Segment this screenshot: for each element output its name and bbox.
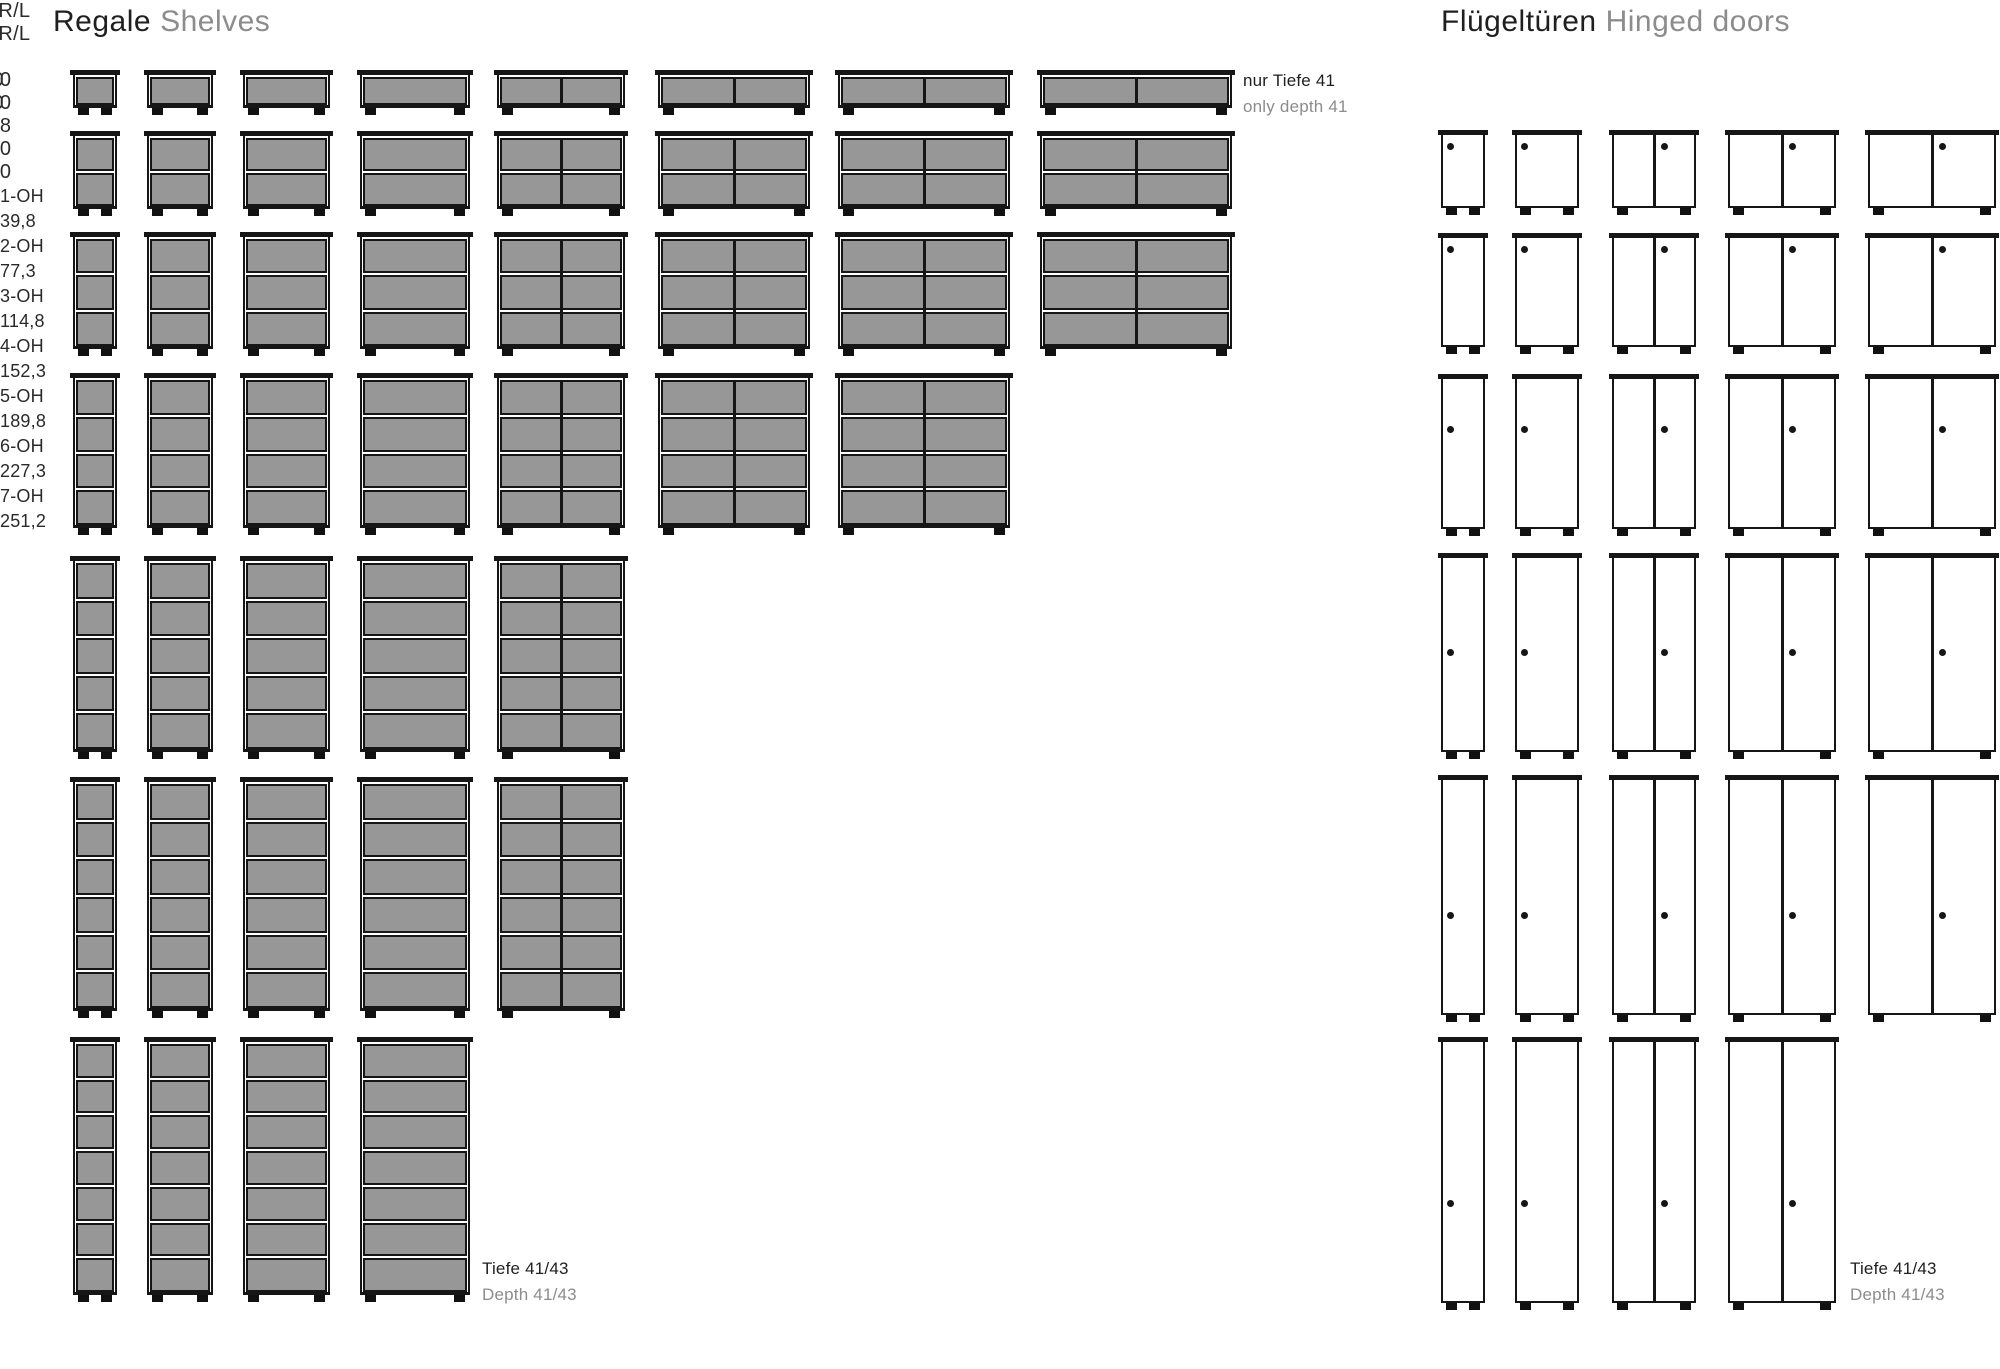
shelf-compartment	[363, 676, 467, 712]
unit-foot-left	[1617, 752, 1628, 759]
shelf-compartment	[363, 1258, 467, 1292]
unit-foot-left	[663, 349, 674, 356]
shelf-body	[243, 782, 330, 1011]
unit-foot-left	[248, 349, 259, 356]
shelf-compartment	[363, 275, 467, 309]
unit-foot-right	[1216, 108, 1227, 115]
unit-foot-right	[609, 349, 620, 356]
shelf-compartment	[363, 897, 467, 933]
shelf-body	[360, 75, 470, 108]
shelf-body	[360, 561, 470, 752]
shelf-unit-3-OH-w138	[658, 232, 810, 357]
row-label-oh: 6-OH	[0, 434, 46, 459]
shelf-compartment	[246, 972, 327, 1008]
shelf-body	[73, 237, 117, 349]
shelves-depth-note-en: Depth 41/43	[482, 1282, 577, 1308]
door-body	[1515, 238, 1579, 347]
doors-section: 40 R/L60 R/L80100120	[0, 0, 61, 115]
shelf-body	[147, 136, 213, 209]
shelf-column-header-138: 138	[0, 115, 23, 138]
unit-foot-right	[609, 752, 620, 759]
unit-foot-left	[152, 528, 163, 535]
unit-foot-right	[314, 349, 325, 356]
unit-foot-left	[1446, 347, 1457, 354]
shelf-compartment	[363, 1151, 467, 1185]
shelf-center-divider	[560, 380, 563, 525]
shelf-unit-1-OH-w138	[658, 70, 810, 116]
door-body	[1441, 780, 1485, 1015]
door-unit-3oh-w60	[1515, 233, 1579, 355]
unit-foot-left	[1617, 1015, 1628, 1022]
door-unit-3oh-w120	[1868, 233, 1996, 355]
shelf-center-divider	[923, 380, 926, 525]
shelf-compartment	[150, 275, 210, 309]
shelf-compartment	[363, 77, 467, 105]
shelf-unit-4-OH-w80	[243, 373, 330, 536]
unit-foot-right	[609, 528, 620, 535]
shelf-compartment	[76, 676, 114, 712]
door-handle-dot	[1661, 1200, 1668, 1207]
shelf-body	[243, 378, 330, 528]
shelf-compartment	[76, 454, 114, 489]
door-column-header-100: 100	[0, 69, 30, 92]
shelf-compartment	[150, 935, 210, 971]
unit-foot-right	[197, 528, 208, 535]
door-unit-2oh-w40	[1441, 130, 1485, 216]
shelf-unit-5-OH-w40	[73, 556, 117, 760]
unit-foot-right	[1980, 347, 1991, 354]
shelf-compartment	[76, 490, 114, 525]
shelf-row-label-1-OH: 1-OH39,8	[0, 184, 46, 234]
shelf-unit-6-OH-w120	[497, 777, 625, 1019]
shelf-compartment	[246, 935, 327, 971]
shelf-row-label-4-OH: 4-OH152,3	[0, 334, 46, 384]
unit-foot-right	[1820, 529, 1831, 536]
shelf-unit-2-OH-w40	[73, 131, 117, 217]
door-column-header-80: 80	[0, 46, 30, 69]
shelf-unit-3-OH-w80	[243, 232, 330, 357]
unit-foot-left	[843, 528, 854, 535]
shelf-column-header-160: 160	[0, 138, 23, 161]
shelf-row-label-6-OH: 6-OH227,3	[0, 434, 46, 484]
unit-foot-right	[101, 209, 112, 216]
unit-foot-right	[1563, 752, 1574, 759]
unit-foot-right	[1469, 1303, 1480, 1310]
door-unit-3oh-w40	[1441, 233, 1485, 355]
shelves-depth-note: Tiefe 41/43 Depth 41/43	[482, 1256, 577, 1308]
door-handle-dot	[1521, 426, 1528, 433]
unit-foot-left	[1520, 529, 1531, 536]
shelf-compartment	[246, 713, 327, 749]
shelf-compartment	[246, 173, 327, 206]
shelf-unit-1-OH-w100	[360, 70, 470, 116]
shelf-body	[73, 75, 117, 108]
door-unit-3oh-w100	[1728, 233, 1836, 355]
unit-foot-right	[454, 1295, 465, 1302]
unit-foot-left	[1617, 347, 1628, 354]
unit-foot-left	[1733, 347, 1744, 354]
unit-foot-left	[152, 752, 163, 759]
door-handle-dot	[1939, 426, 1946, 433]
unit-foot-right	[197, 209, 208, 216]
doors-title-de: Flügeltüren	[1441, 5, 1597, 38]
shelf-compartment	[150, 897, 210, 933]
shelf-compartment	[363, 454, 467, 489]
shelf-compartment	[246, 601, 327, 637]
shelf-compartment	[363, 380, 467, 415]
unit-foot-right	[197, 1295, 208, 1302]
shelf-compartment	[363, 1187, 467, 1221]
shelves-title-de: Regale	[53, 5, 151, 38]
doors-depth-note-en: Depth 41/43	[1850, 1282, 1945, 1308]
shelf-compartment	[246, 1187, 327, 1221]
door-unit-2oh-w120	[1868, 130, 1996, 216]
unit-foot-left	[1520, 208, 1531, 215]
unit-foot-left	[843, 108, 854, 115]
unit-foot-left	[843, 209, 854, 216]
unit-foot-right	[101, 1011, 112, 1018]
door-center-gap	[1931, 379, 1934, 529]
unit-foot-left	[502, 1011, 513, 1018]
unit-foot-right	[794, 349, 805, 356]
shelf-compartment	[76, 822, 114, 858]
door-column-header-60: 60 R/L	[0, 23, 30, 46]
shelves-title: RegaleShelves	[53, 5, 270, 39]
shelf-body	[243, 75, 330, 108]
unit-foot-left	[365, 108, 376, 115]
shelf-compartment	[150, 713, 210, 749]
shelf-unit-1-OH-w40	[73, 70, 117, 116]
shelf-compartment	[246, 454, 327, 489]
shelf-compartment	[76, 1080, 114, 1114]
shelf-compartment	[150, 417, 210, 452]
unit-foot-right	[454, 349, 465, 356]
shelf-unit-4-OH-w100	[360, 373, 470, 536]
unit-foot-right	[1980, 752, 1991, 759]
unit-foot-left	[152, 1011, 163, 1018]
row-label-height: 227,3	[0, 459, 46, 484]
door-center-gap	[1781, 238, 1784, 347]
unit-foot-right	[1680, 1015, 1691, 1022]
shelf-compartment	[76, 1258, 114, 1292]
shelf-compartment	[76, 380, 114, 415]
unit-foot-right	[314, 1295, 325, 1302]
shelf-compartment	[150, 77, 210, 105]
door-handle-dot	[1661, 649, 1668, 656]
shelf-compartment	[150, 1258, 210, 1292]
shelf-unit-5-OH-w80	[243, 556, 330, 760]
unit-foot-left	[248, 1295, 259, 1302]
row-label-height: 152,3	[0, 359, 46, 384]
shelf-body	[147, 75, 213, 108]
unit-foot-left	[1733, 1015, 1744, 1022]
unit-foot-right	[197, 349, 208, 356]
door-center-gap	[1653, 238, 1656, 347]
shelf-body	[73, 136, 117, 209]
door-unit-5oh-w40	[1441, 553, 1485, 760]
door-center-gap	[1781, 558, 1784, 752]
door-handle-dot	[1447, 246, 1454, 253]
door-center-gap	[1931, 135, 1934, 208]
unit-foot-left	[365, 349, 376, 356]
row-label-oh: 7-OH	[0, 484, 46, 509]
unit-foot-left	[1733, 208, 1744, 215]
shelf-unit-7-OH-w100	[360, 1037, 470, 1303]
door-unit-6oh-w100	[1728, 775, 1836, 1023]
row-label-oh: 4-OH	[0, 334, 46, 359]
door-unit-5oh-w80	[1612, 553, 1696, 760]
shelf-compartment	[76, 601, 114, 637]
unit-foot-right	[101, 349, 112, 356]
shelf-body	[147, 237, 213, 349]
unit-foot-right	[314, 1011, 325, 1018]
door-unit-3oh-w80	[1612, 233, 1696, 355]
door-handle-dot	[1939, 912, 1946, 919]
shelf-compartment	[150, 563, 210, 599]
unit-foot-right	[1469, 1015, 1480, 1022]
unit-foot-right	[1820, 1303, 1831, 1310]
shelf-compartment	[150, 1080, 210, 1114]
shelf-compartment	[246, 417, 327, 452]
unit-foot-right	[1820, 208, 1831, 215]
shelf-compartment	[76, 1187, 114, 1221]
shelf-compartment	[246, 1044, 327, 1078]
shelf-compartment	[246, 859, 327, 895]
shelf-compartment	[150, 1044, 210, 1078]
door-center-gap	[1653, 558, 1656, 752]
unit-foot-right	[101, 1295, 112, 1302]
shelf-compartment	[246, 490, 327, 525]
shelf-unit-6-OH-w60	[147, 777, 213, 1019]
shelf-unit-3-OH-w160	[838, 232, 1010, 357]
only-depth-note-de: nur Tiefe 41	[1243, 68, 1348, 94]
unit-foot-left	[1733, 529, 1744, 536]
shelf-unit-2-OH-w120	[497, 131, 625, 217]
unit-foot-left	[78, 349, 89, 356]
shelf-compartment	[150, 454, 210, 489]
door-handle-dot	[1661, 246, 1668, 253]
unit-foot-right	[1469, 529, 1480, 536]
shelf-compartment	[76, 972, 114, 1008]
door-center-gap	[1653, 379, 1656, 529]
door-unit-4oh-w60	[1515, 374, 1579, 537]
shelf-compartment	[363, 1115, 467, 1149]
door-unit-2oh-w60	[1515, 130, 1579, 216]
door-handle-dot	[1447, 1200, 1454, 1207]
door-unit-4oh-w80	[1612, 374, 1696, 537]
unit-foot-right	[1469, 208, 1480, 215]
shelf-body	[147, 561, 213, 752]
door-center-gap	[1781, 135, 1784, 208]
unit-foot-left	[1617, 1303, 1628, 1310]
row-label-height: 39,8	[0, 209, 46, 234]
unit-foot-right	[101, 108, 112, 115]
shelf-unit-5-OH-w100	[360, 556, 470, 760]
unit-foot-right	[1216, 349, 1227, 356]
unit-foot-right	[314, 108, 325, 115]
shelf-body	[360, 1042, 470, 1295]
unit-foot-left	[248, 528, 259, 535]
shelf-compartment	[76, 859, 114, 895]
shelf-compartment	[76, 563, 114, 599]
shelf-compartment	[76, 935, 114, 971]
door-handle-dot	[1939, 649, 1946, 656]
shelf-center-divider	[1135, 239, 1138, 346]
shelf-unit-4-OH-w120	[497, 373, 625, 536]
door-handle-dot	[1789, 426, 1796, 433]
shelf-compartment	[363, 859, 467, 895]
shelf-compartment	[150, 173, 210, 206]
unit-foot-right	[1469, 347, 1480, 354]
unit-foot-right	[1469, 752, 1480, 759]
unit-foot-right	[609, 1011, 620, 1018]
shelf-compartment	[363, 784, 467, 820]
door-center-gap	[1931, 238, 1934, 347]
shelf-center-divider	[560, 77, 563, 105]
unit-foot-left	[248, 209, 259, 216]
unit-foot-left	[365, 209, 376, 216]
unit-foot-left	[248, 108, 259, 115]
shelf-unit-3-OH-w60	[147, 232, 213, 357]
door-center-gap	[1653, 780, 1656, 1015]
unit-foot-left	[1446, 208, 1457, 215]
shelf-body	[360, 136, 470, 209]
shelf-compartment	[363, 638, 467, 674]
doors-depth-note: Tiefe 41/43 Depth 41/43	[1850, 1256, 1945, 1308]
shelf-compartment	[246, 1151, 327, 1185]
shelf-unit-6-OH-w40	[73, 777, 117, 1019]
shelf-compartment	[363, 312, 467, 346]
shelf-unit-1-OH-w80	[243, 70, 330, 116]
door-body	[1515, 1042, 1579, 1303]
unit-foot-left	[1446, 752, 1457, 759]
shelf-compartment	[76, 1115, 114, 1149]
unit-foot-left	[365, 1295, 376, 1302]
shelf-unit-4-OH-w60	[147, 373, 213, 536]
shelf-compartment	[150, 1187, 210, 1221]
shelf-body	[73, 378, 117, 528]
door-unit-2oh-w100	[1728, 130, 1836, 216]
shelf-compartment	[246, 563, 327, 599]
unit-foot-left	[1617, 529, 1628, 536]
shelf-compartment	[76, 173, 114, 206]
shelf-compartment	[363, 239, 467, 273]
unit-foot-left	[1520, 752, 1531, 759]
unit-foot-right	[794, 209, 805, 216]
door-body	[1441, 379, 1485, 529]
unit-foot-right	[1680, 1303, 1691, 1310]
shelf-center-divider	[560, 563, 563, 749]
unit-foot-right	[609, 209, 620, 216]
shelf-compartment	[363, 1223, 467, 1257]
unit-foot-left	[78, 209, 89, 216]
shelf-unit-3-OH-w40	[73, 232, 117, 357]
unit-foot-right	[1820, 347, 1831, 354]
door-handle-dot	[1521, 143, 1528, 150]
shelf-compartment	[76, 77, 114, 105]
unit-foot-right	[1563, 529, 1574, 536]
unit-foot-left	[502, 209, 513, 216]
row-label-height: 189,8	[0, 409, 46, 434]
shelf-compartment	[76, 138, 114, 171]
unit-foot-left	[502, 108, 513, 115]
shelf-center-divider	[733, 138, 736, 206]
shelf-unit-1-OH-w60	[147, 70, 213, 116]
door-unit-6oh-w60	[1515, 775, 1579, 1023]
doors-depth-note-de: Tiefe 41/43	[1850, 1256, 1945, 1282]
shelf-compartment	[150, 859, 210, 895]
unit-foot-right	[794, 108, 805, 115]
shelf-center-divider	[733, 77, 736, 105]
shelf-compartment	[363, 563, 467, 599]
shelf-unit-2-OH-w138	[658, 131, 810, 217]
shelf-compartment	[76, 275, 114, 309]
door-handle-dot	[1447, 143, 1454, 150]
shelf-compartment	[150, 1223, 210, 1257]
door-unit-4oh-w100	[1728, 374, 1836, 537]
shelf-compartment	[246, 1115, 327, 1149]
shelf-compartment	[150, 239, 210, 273]
shelf-unit-2-OH-w100	[360, 131, 470, 217]
shelf-unit-1-OH-w160	[838, 70, 1010, 116]
shelf-unit-3-OH-w180	[1040, 232, 1232, 357]
shelf-compartment	[150, 601, 210, 637]
door-center-gap	[1653, 135, 1656, 208]
shelf-compartment	[150, 380, 210, 415]
shelf-body	[243, 561, 330, 752]
door-center-gap	[1781, 1042, 1784, 1303]
unit-foot-right	[314, 752, 325, 759]
unit-foot-left	[502, 752, 513, 759]
door-body	[1441, 1042, 1485, 1303]
shelf-compartment	[76, 1044, 114, 1078]
shelf-center-divider	[923, 138, 926, 206]
shelf-compartment	[246, 77, 327, 105]
unit-foot-left	[1873, 752, 1884, 759]
unit-foot-right	[454, 1011, 465, 1018]
unit-foot-left	[663, 209, 674, 216]
door-unit-7oh-w80	[1612, 1037, 1696, 1311]
door-center-gap	[1781, 780, 1784, 1015]
unit-foot-right	[609, 108, 620, 115]
shelf-compartment	[246, 239, 327, 273]
door-unit-6oh-w80	[1612, 775, 1696, 1023]
shelf-compartment	[76, 638, 114, 674]
row-label-oh: 2-OH	[0, 234, 46, 259]
shelf-compartment	[150, 676, 210, 712]
door-handle-dot	[1939, 143, 1946, 150]
unit-foot-right	[1980, 208, 1991, 215]
door-center-gap	[1781, 379, 1784, 529]
shelf-body	[147, 378, 213, 528]
shelf-compartment	[76, 1223, 114, 1257]
shelf-column-header-180: 180	[0, 161, 23, 184]
unit-foot-left	[1873, 529, 1884, 536]
shelf-unit-1-OH-w120	[497, 70, 625, 116]
door-unit-4oh-w40	[1441, 374, 1485, 537]
unit-foot-left	[663, 108, 674, 115]
door-handle-dot	[1789, 912, 1796, 919]
shelf-unit-3-OH-w100	[360, 232, 470, 357]
unit-foot-right	[1563, 347, 1574, 354]
door-body	[1515, 780, 1579, 1015]
unit-foot-left	[1045, 209, 1056, 216]
unit-foot-right	[1563, 208, 1574, 215]
shelf-body	[73, 782, 117, 1011]
shelf-compartment	[246, 138, 327, 171]
unit-foot-left	[1446, 1015, 1457, 1022]
shelf-center-divider	[923, 77, 926, 105]
